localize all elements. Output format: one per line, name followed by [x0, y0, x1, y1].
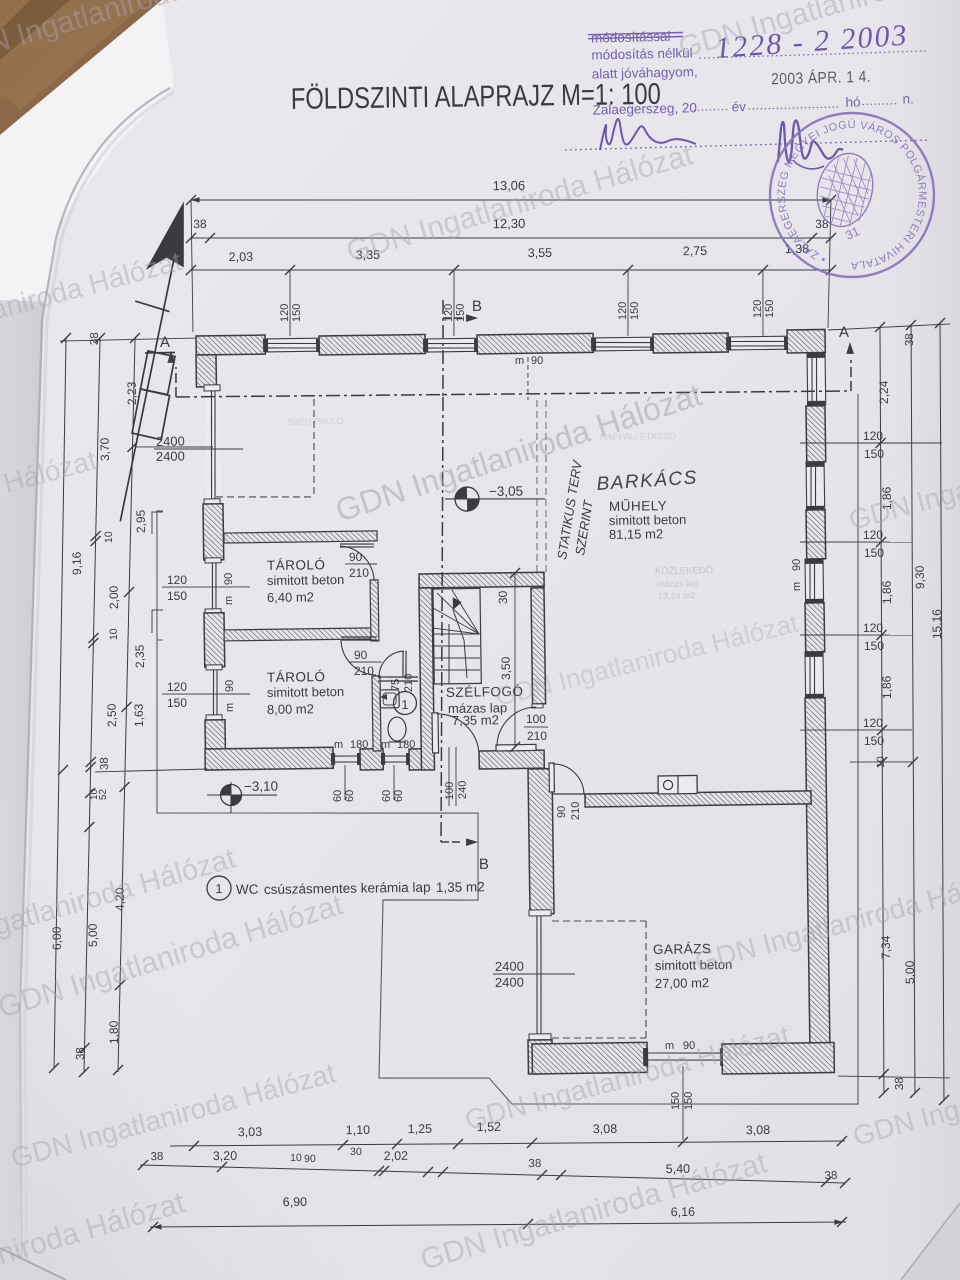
svg-text:150: 150: [670, 1092, 682, 1111]
svg-text:60: 60: [332, 790, 344, 802]
svg-text:10: 10: [290, 1152, 302, 1164]
svg-text:5,00: 5,00: [86, 923, 100, 947]
svg-text:m: m: [515, 355, 524, 367]
svg-text:90: 90: [304, 1153, 316, 1165]
svg-text:90: 90: [354, 648, 368, 662]
svg-text:30: 30: [496, 590, 510, 604]
svg-text:2,95: 2,95: [134, 509, 148, 533]
svg-text:módosítás nélkül: módosítás nélkül: [591, 45, 693, 62]
svg-text:2,75: 2,75: [683, 244, 708, 258]
svg-text:10: 10: [108, 628, 120, 640]
svg-text:150: 150: [167, 589, 188, 603]
svg-text:52: 52: [98, 788, 109, 800]
svg-text:150: 150: [291, 304, 303, 323]
svg-text:38: 38: [89, 332, 101, 345]
svg-text:7,34: 7,34: [879, 935, 893, 959]
svg-text:3,50: 3,50: [499, 656, 513, 680]
svg-text:n.: n.: [902, 91, 914, 106]
svg-text:3,08: 3,08: [746, 1123, 771, 1137]
svg-text:38: 38: [815, 217, 829, 231]
svg-text:27,00 m2: 27,00 m2: [655, 975, 709, 991]
svg-text:2003 ÁPR. 1 4.: 2003 ÁPR. 1 4.: [771, 67, 871, 89]
svg-text:150: 150: [864, 639, 885, 653]
svg-text:m: m: [224, 703, 236, 712]
svg-text:150: 150: [167, 696, 188, 710]
svg-text:7,35 m2: 7,35 m2: [452, 712, 499, 728]
svg-text:2400: 2400: [156, 449, 185, 464]
svg-text:SVÉD PADLÓ: SVÉD PADLÓ: [287, 416, 344, 427]
svg-text:TÁROLÓ: TÁROLÓ: [267, 669, 326, 685]
svg-text:38: 38: [824, 1170, 837, 1182]
svg-text:120: 120: [752, 300, 764, 319]
svg-text:150: 150: [629, 302, 641, 321]
svg-text:2,03: 2,03: [229, 250, 254, 264]
svg-text:120: 120: [863, 716, 884, 730]
svg-text:38: 38: [193, 217, 207, 231]
svg-text:60: 60: [381, 790, 393, 802]
svg-text:6,40 m2: 6,40 m2: [267, 589, 314, 605]
svg-text:m: m: [334, 739, 343, 751]
svg-text:2400: 2400: [495, 959, 524, 974]
svg-text:−3,10: −3,10: [244, 779, 278, 794]
svg-text:1,35 m2: 1,35 m2: [436, 879, 485, 895]
svg-text:90: 90: [531, 355, 543, 367]
svg-text:38: 38: [151, 1151, 164, 1163]
svg-text:30: 30: [350, 1146, 362, 1158]
svg-text:90: 90: [556, 806, 568, 818]
svg-text:210: 210: [354, 664, 375, 678]
svg-text:5,00: 5,00: [903, 960, 917, 984]
svg-text:10: 10: [103, 531, 115, 543]
svg-text:csúszásmentes kerámia lap: csúszásmentes kerámia lap: [264, 880, 431, 897]
svg-text:1,25: 1,25: [408, 1122, 433, 1136]
svg-text:120: 120: [863, 621, 884, 635]
svg-text:WC: WC: [236, 882, 259, 897]
svg-text:1,10: 1,10: [346, 1123, 371, 1137]
svg-text:120: 120: [863, 429, 884, 443]
svg-text:150: 150: [864, 546, 885, 560]
svg-text:3,70: 3,70: [98, 437, 112, 461]
svg-text:180: 180: [397, 739, 416, 751]
svg-text:150: 150: [683, 1092, 695, 1111]
svg-text:mázas lap: mázas lap: [657, 578, 698, 589]
svg-text:8,00 m2: 8,00 m2: [267, 701, 314, 717]
svg-text:−3,05: −3,05: [489, 484, 523, 499]
svg-text:60: 60: [344, 790, 356, 802]
svg-text:simitott beton: simitott beton: [267, 684, 345, 700]
svg-text:1,86: 1,86: [880, 580, 894, 604]
svg-text:1: 1: [215, 881, 222, 896]
svg-text:38: 38: [528, 1158, 541, 1170]
svg-text:210: 210: [349, 566, 370, 580]
svg-text:100: 100: [444, 782, 456, 801]
svg-text:210: 210: [403, 674, 415, 693]
svg-text:2,23: 2,23: [125, 381, 139, 405]
svg-text:A: A: [160, 334, 170, 351]
svg-text:38: 38: [75, 1047, 87, 1060]
svg-text:150: 150: [764, 300, 776, 319]
svg-text:210: 210: [570, 802, 582, 821]
svg-text:3,55: 3,55: [528, 246, 553, 260]
svg-text:9,16: 9,16: [70, 551, 84, 575]
svg-text:1,80: 1,80: [107, 1020, 121, 1044]
svg-text:90: 90: [224, 680, 236, 692]
svg-text:6,00: 6,00: [50, 926, 64, 950]
svg-text:90: 90: [223, 573, 235, 585]
svg-text:3,20: 3,20: [213, 1149, 238, 1163]
svg-text:1,63: 1,63: [132, 703, 146, 727]
svg-text:13,14 m2: 13,14 m2: [658, 590, 696, 601]
svg-text:180: 180: [350, 739, 369, 751]
svg-text:A: A: [839, 324, 849, 341]
svg-text:38: 38: [99, 757, 111, 770]
svg-text:90: 90: [349, 550, 363, 564]
svg-text:2,50: 2,50: [105, 703, 119, 727]
svg-text:120: 120: [167, 680, 188, 694]
svg-text:2,00: 2,00: [107, 585, 121, 609]
svg-text:150: 150: [864, 447, 885, 461]
svg-text:B: B: [479, 856, 489, 873]
svg-text:240: 240: [457, 781, 469, 800]
svg-text:38: 38: [904, 333, 916, 346]
svg-text:75: 75: [390, 679, 402, 691]
svg-text:120: 120: [167, 573, 188, 587]
svg-text:60: 60: [393, 790, 405, 802]
svg-text:15,16: 15,16: [930, 609, 944, 640]
svg-text:90: 90: [791, 559, 803, 571]
svg-text:10: 10: [875, 756, 887, 768]
svg-text:m: m: [381, 739, 390, 751]
svg-text:150: 150: [864, 734, 885, 748]
svg-text:150: 150: [455, 304, 467, 323]
svg-text:6,16: 6,16: [671, 1205, 696, 1219]
svg-text:2400: 2400: [495, 975, 524, 990]
svg-text:év: év: [731, 99, 746, 114]
svg-text:6,90: 6,90: [283, 1195, 308, 1209]
svg-text:2,35: 2,35: [133, 644, 147, 668]
svg-text:hó: hó: [845, 94, 860, 109]
svg-text:Zalaegerszeg, 20: Zalaegerszeg, 20: [592, 100, 697, 117]
svg-text:210: 210: [527, 729, 548, 743]
svg-text:3,03: 3,03: [238, 1125, 263, 1139]
svg-text:m: m: [791, 582, 803, 591]
svg-text:2,02: 2,02: [384, 1149, 409, 1163]
svg-text:simitott beton: simitott beton: [267, 572, 345, 588]
svg-text:120: 120: [617, 302, 629, 321]
svg-text:alatt jóváhagyom,: alatt jóváhagyom,: [592, 64, 698, 81]
svg-text:9,30: 9,30: [913, 565, 927, 589]
svg-text:2,24: 2,24: [877, 380, 891, 404]
svg-text:100: 100: [526, 712, 547, 726]
svg-text:38: 38: [894, 1077, 906, 1090]
svg-text:TÁROLÓ: TÁROLÓ: [267, 557, 326, 573]
svg-text:KÖZLEKEDŐ: KÖZLEKEDŐ: [655, 565, 713, 577]
svg-text:120: 120: [279, 304, 291, 323]
svg-text:1: 1: [401, 697, 408, 712]
svg-text:120: 120: [443, 304, 455, 323]
svg-text:2400: 2400: [156, 434, 185, 449]
svg-text:81,15 m2: 81,15 m2: [609, 526, 663, 542]
svg-text:3,08: 3,08: [593, 1122, 618, 1136]
svg-text:1,86: 1,86: [880, 675, 894, 699]
svg-text:B: B: [472, 298, 482, 315]
svg-text:m: m: [223, 596, 235, 605]
